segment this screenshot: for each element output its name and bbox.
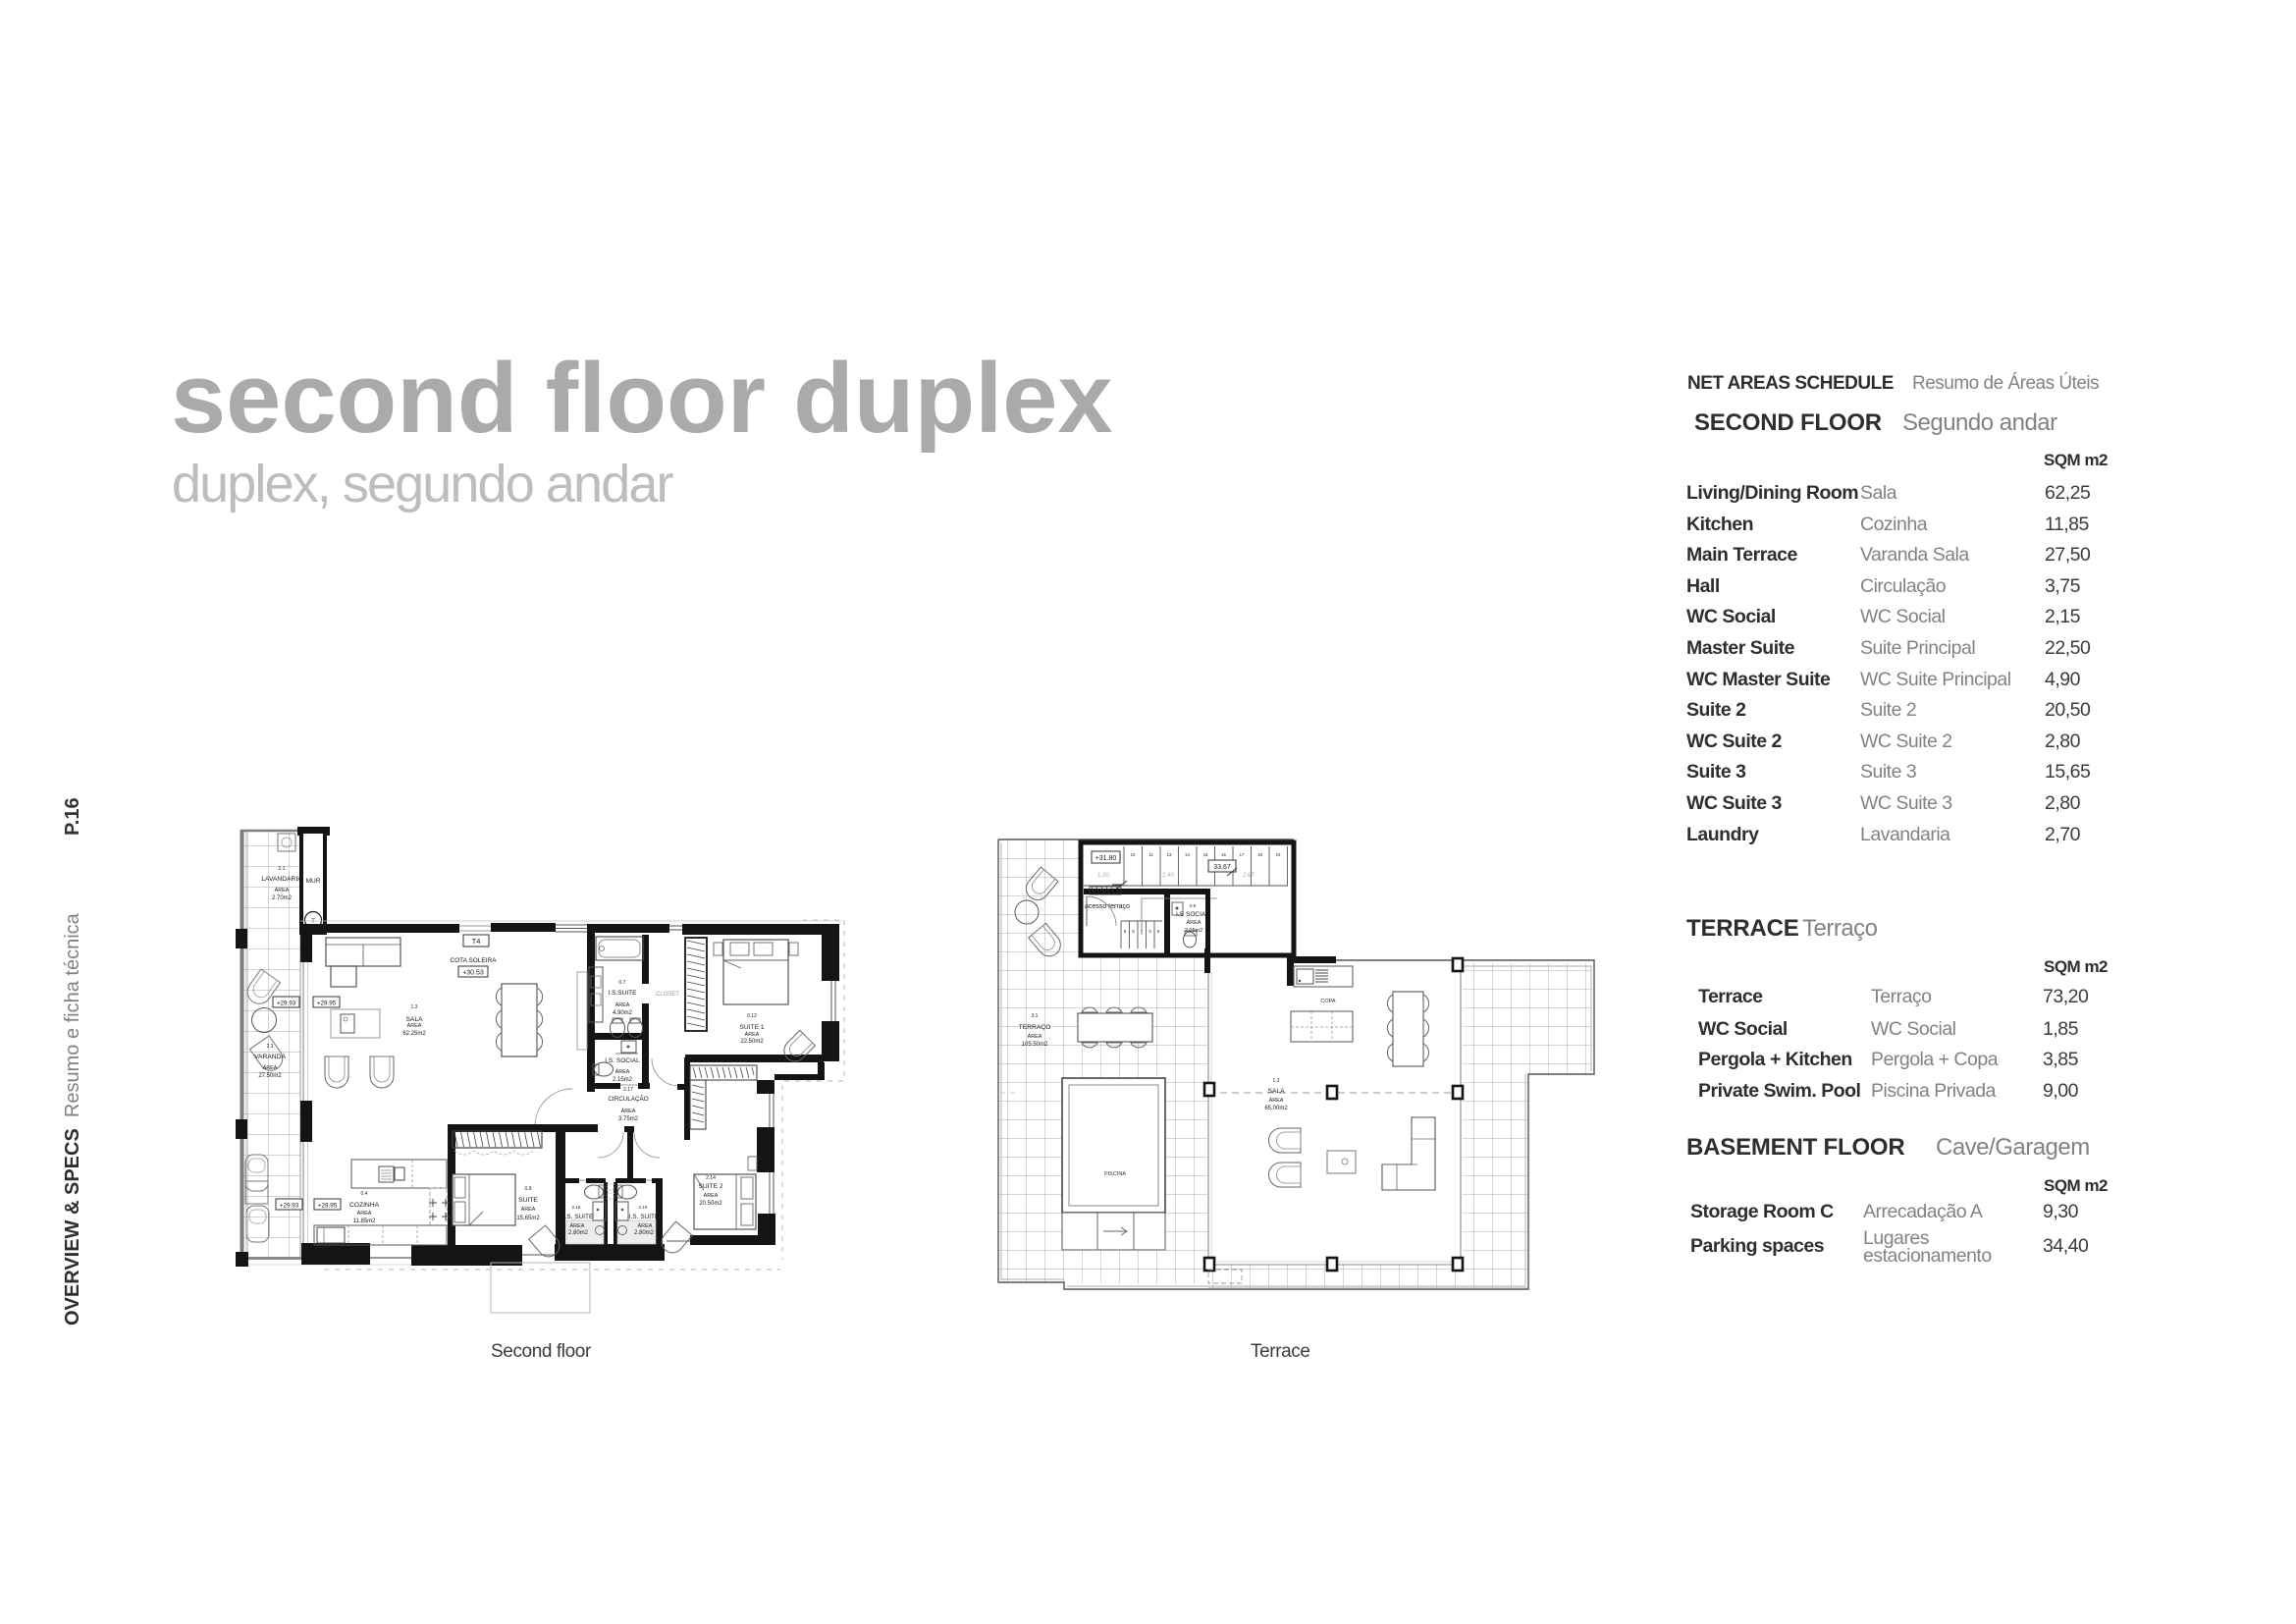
svg-text:1.3: 1.3 (1273, 1078, 1280, 1084)
svg-text:0.7: 0.7 (619, 980, 626, 986)
svg-text:COTA SOLEIRA: COTA SOLEIRA (450, 957, 497, 964)
svg-text:COPA: COPA (1320, 999, 1336, 1004)
svg-text:2.15m2: 2.15m2 (613, 1077, 633, 1083)
svg-text:CIRCULAÇÃO: CIRCULAÇÃO (608, 1094, 648, 1103)
svg-text:0.4: 0.4 (361, 1191, 368, 1197)
svg-text:I.S.SUITE: I.S.SUITE (609, 990, 638, 997)
svg-text:ÁREA: ÁREA (1028, 1033, 1042, 1040)
svg-text:SUITE: SUITE (518, 1197, 538, 1204)
svg-text:2.14: 2.14 (706, 1175, 716, 1181)
svg-text:ÁREA: ÁREA (407, 1022, 422, 1029)
svg-text:15.65m2: 15.65m2 (516, 1216, 540, 1221)
svg-text:17: 17 (1240, 852, 1245, 857)
svg-text:2.1: 2.1 (279, 866, 286, 872)
svg-text:2.67: 2.67 (1243, 873, 1255, 879)
svg-text:PISCINA: PISCINA (1104, 1171, 1126, 1177)
svg-text:I.S. SUITE: I.S. SUITE (629, 1214, 660, 1220)
svg-text:11: 11 (1148, 852, 1153, 857)
svg-text:ÁREA: ÁREA (638, 1222, 653, 1229)
svg-text:13: 13 (1167, 852, 1172, 857)
svg-text:2.40: 2.40 (1162, 873, 1174, 879)
svg-text:ÁREA: ÁREA (521, 1206, 536, 1213)
svg-text:ÁREA: ÁREA (263, 1064, 278, 1071)
svg-text:+29.95: +29.95 (318, 1203, 338, 1210)
svg-text:0.9: 0.9 (525, 1186, 532, 1192)
svg-text:CLOSET: CLOSET (656, 992, 679, 998)
svg-text:2.17: 2.17 (623, 1087, 633, 1093)
svg-text:T4: T4 (472, 937, 481, 946)
svg-text:ÁREA: ÁREA (357, 1210, 372, 1217)
svg-text:15: 15 (1203, 852, 1208, 857)
svg-text:SALA: SALA (1267, 1088, 1285, 1095)
svg-text:105.50m2: 105.50m2 (1022, 1042, 1048, 1048)
svg-text:19: 19 (1276, 852, 1281, 857)
svg-text:16: 16 (1221, 852, 1226, 857)
svg-text:SUITE 1: SUITE 1 (739, 1024, 765, 1031)
svg-text:MUR: MUR (306, 878, 321, 885)
svg-text:4.90m2: 4.90m2 (613, 1010, 633, 1016)
svg-text:ÁREA: ÁREA (1269, 1097, 1284, 1104)
svg-text:SUITE 2: SUITE 2 (698, 1183, 723, 1190)
svg-text:65,00m2: 65,00m2 (1264, 1106, 1288, 1111)
svg-text:1.3: 1.3 (411, 1004, 418, 1010)
svg-text:ÁREA: ÁREA (615, 1001, 630, 1008)
svg-text:2.80m2: 2.80m2 (568, 1230, 589, 1236)
svg-text:VARANDA: VARANDA (254, 1054, 286, 1060)
svg-text:3.75m2: 3.75m2 (618, 1116, 639, 1122)
svg-text:SALA: SALA (405, 1016, 423, 1023)
svg-text:22.50m2: 22.50m2 (740, 1039, 764, 1045)
svg-text:ÁREA: ÁREA (621, 1108, 636, 1114)
svg-text:ÁREA: ÁREA (1187, 919, 1201, 926)
svg-text:18: 18 (1257, 852, 1262, 857)
svg-text:I.S. SOCIAL: I.S. SOCIAL (605, 1057, 640, 1064)
svg-text:1.20: 1.20 (1097, 873, 1109, 879)
svg-text:3.1: 3.1 (1032, 1013, 1039, 1019)
svg-text:LAVANDARIA: LAVANDARIA (261, 876, 302, 883)
svg-text:+29.95: +29.95 (317, 1001, 337, 1007)
svg-text:+29.93: +29.93 (277, 1001, 296, 1007)
svg-text:14: 14 (1185, 852, 1190, 857)
svg-text:+31.80: +31.80 (1095, 855, 1117, 862)
svg-text:62.25m2: 62.25m2 (402, 1031, 426, 1037)
svg-text:ÁREA: ÁREA (745, 1031, 760, 1038)
svg-text:TERRAÇO: TERRAÇO (1019, 1024, 1051, 1031)
svg-text:ÁREA: ÁREA (570, 1222, 585, 1229)
svg-text:20.50m2: 20.50m2 (699, 1201, 722, 1207)
svg-text:0.5: 0.5 (1190, 903, 1197, 908)
svg-text:2.70m2: 2.70m2 (272, 895, 293, 901)
svg-text:+30.53: +30.53 (462, 970, 484, 977)
svg-text:I.S: I.S (1176, 911, 1185, 918)
svg-text:2.15: 2.15 (639, 1205, 648, 1210)
svg-text:ÁREA: ÁREA (275, 887, 290, 893)
svg-text:0.12: 0.12 (747, 1013, 757, 1019)
svg-text:27.50m2: 27.50m2 (258, 1073, 282, 1079)
svg-text:2.16: 2.16 (572, 1205, 581, 1210)
svg-text:2.3: 2.3 (267, 1044, 274, 1050)
svg-text:+29.93: +29.93 (280, 1203, 299, 1210)
svg-text:33,67: 33,67 (1213, 864, 1231, 871)
svg-text:ÁREA: ÁREA (615, 1068, 630, 1075)
svg-text:10: 10 (1131, 852, 1136, 857)
svg-text:2.80m2: 2.80m2 (634, 1230, 655, 1236)
svg-text:2.05m2: 2.05m2 (1185, 928, 1202, 934)
svg-text:SOCIAL: SOCIAL (1186, 911, 1209, 918)
svg-text:I.S. SUITE: I.S. SUITE (563, 1214, 594, 1220)
svg-text:ÁREA: ÁREA (704, 1192, 719, 1199)
svg-text:11.85m2: 11.85m2 (353, 1218, 377, 1224)
svg-text:COZINHA: COZINHA (349, 1202, 380, 1209)
